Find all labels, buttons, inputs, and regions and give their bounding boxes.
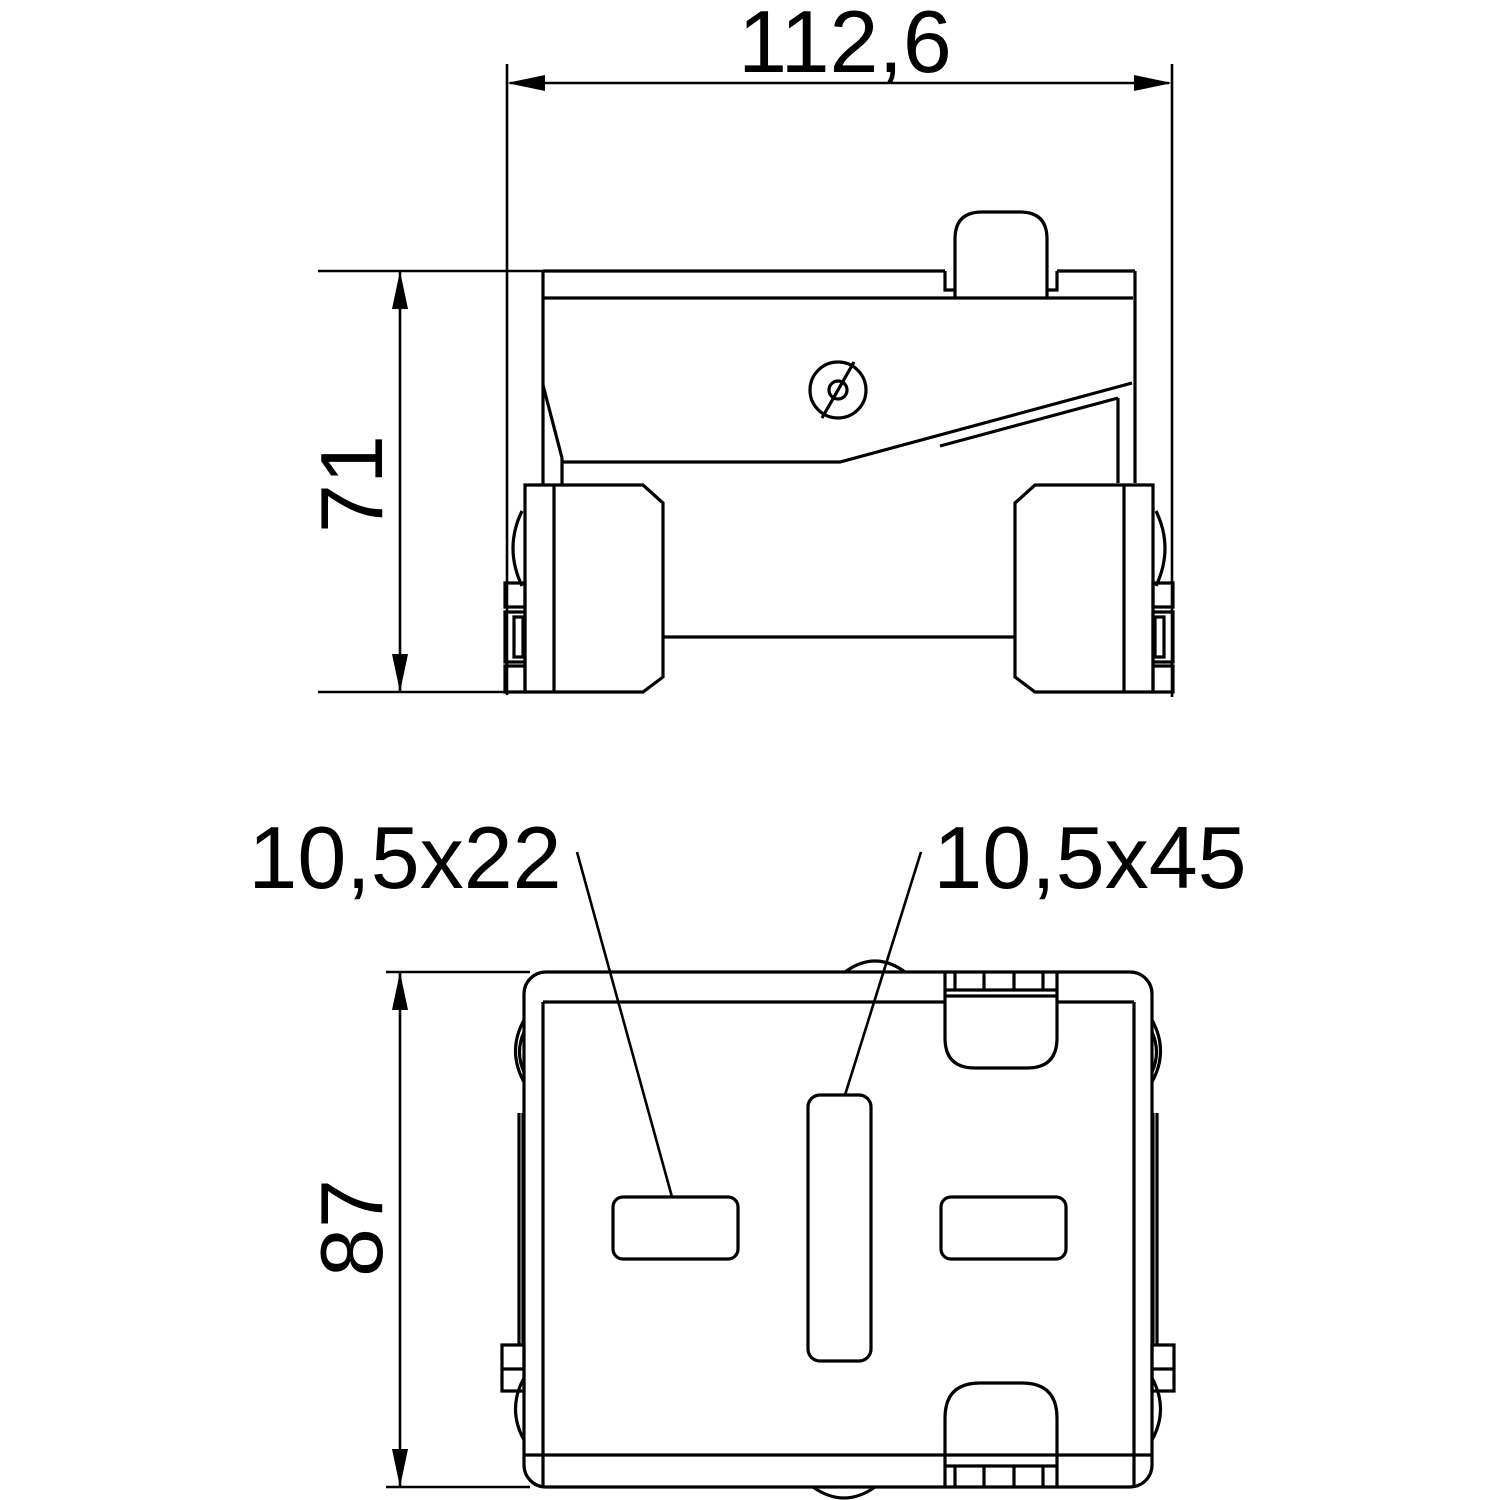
side-spring-inner-arcs [520,1032,1157,1072]
top-latch-pocket [945,972,1057,1068]
slot-center-10_5x45 [808,1095,871,1361]
left-foot-outline [525,485,663,692]
drawing-page: 112,6 71 87 10,5x22 10,5x45 [0,0,1500,1500]
screw-symbol [810,362,866,418]
bottom-height-extension-lines [386,972,530,1487]
bottom-pocket-outline [945,1383,1057,1487]
screw-slot-line [822,362,854,418]
right-foot-screw-details [1153,583,1173,692]
right-foot-outline [1015,485,1153,692]
front-flange-steps [945,271,1057,290]
bottom-edge-nub [813,1487,875,1498]
dimension-overall-width: 112,6 [507,0,1172,697]
width-arrow-left [507,75,545,91]
bottom-comb-ticks [955,1466,1043,1487]
front-view [505,212,1173,692]
left-foot-spring-arc [513,511,522,586]
center-slot-label: 10,5x45 [933,808,1246,907]
bottom-latch-pocket [945,1383,1057,1487]
front-right-foot [1015,485,1173,692]
side-slot-label: 10,5x22 [248,808,561,907]
technical-drawing-canvas: 112,6 71 87 10,5x22 10,5x45 [0,0,1500,1500]
dimension-bottom-height: 87 [302,972,530,1487]
top-pocket-double-line [945,990,1057,996]
top-pocket-outline [945,972,1057,1068]
bottom-height-arrow-bottom [392,1449,408,1487]
side-clamp-plate-lines [519,1113,1157,1345]
right-foot-spring-arc [1156,511,1165,586]
side-clamp-tabs [502,1345,1174,1391]
bottom-inner-verticals [543,1002,1134,1487]
front-height-arrow-bottom [392,654,408,692]
front-height-dimension-label: 71 [302,435,401,533]
bottom-height-arrow-top [392,972,408,1010]
bottom-height-dimension-label: 87 [302,1179,401,1277]
front-latch-tab [955,212,1047,298]
slot-left-10_5x22 [613,1197,738,1259]
slot-right-10_5x22 [941,1197,1066,1259]
width-dimension-label: 112,6 [738,0,952,91]
front-left-fold [543,385,562,485]
bottom-view [502,961,1174,1498]
width-arrow-right [1134,75,1172,91]
top-edge-nub [845,961,905,972]
front-height-arrow-top [392,271,408,309]
side-slot-leader-line [577,852,672,1197]
top-comb-ticks [955,972,1043,990]
front-left-foot [505,485,663,692]
